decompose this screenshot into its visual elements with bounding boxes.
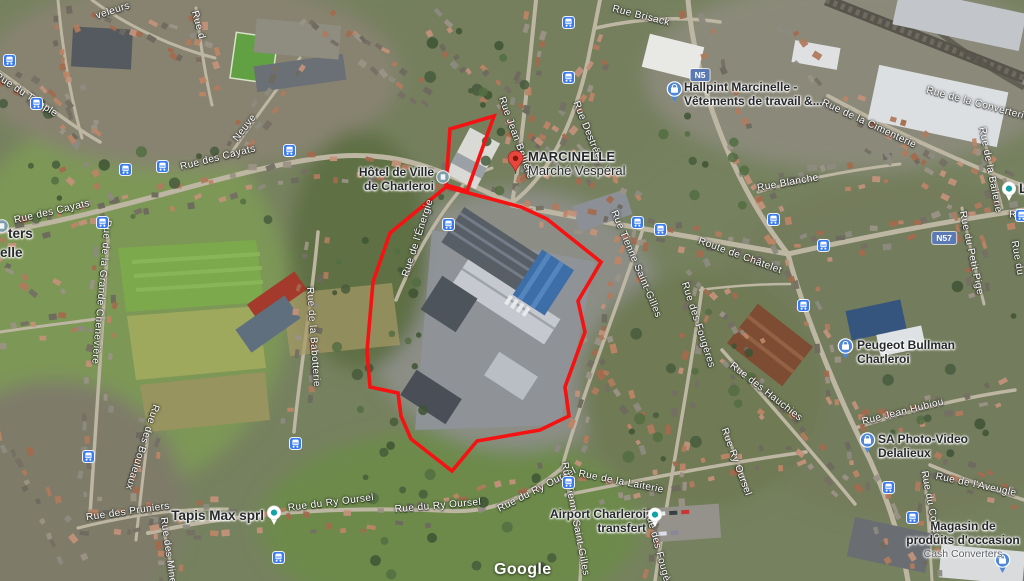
satellite-map-canvas[interactable]: Rue du TempleveleursRue dNeuveRue des Ca… — [0, 0, 1024, 581]
google-watermark: Google — [494, 561, 552, 579]
satellite-imagery — [0, 0, 1024, 581]
